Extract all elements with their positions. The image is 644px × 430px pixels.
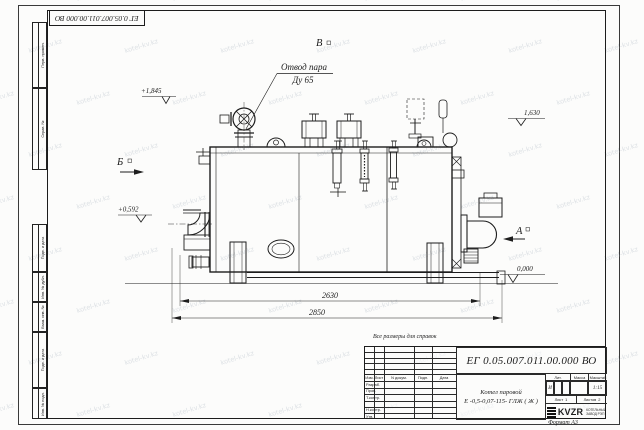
margin-label: Взам. инв. № <box>41 305 45 329</box>
margin-box-inv-podl: Инв. № подл. <box>32 388 47 419</box>
margin-label: Подп. и дата <box>41 349 45 371</box>
product-name-line2: Е -0,5-0,07-115- ГЛЖ ( Ж ) <box>464 398 538 405</box>
elevation-1845: +1,845 <box>141 87 176 104</box>
elevation-text: 1,630 <box>524 109 540 117</box>
margin-box-inv-dubl: Инв. № дубл. <box>32 272 47 302</box>
sheet-value: 1 <box>565 397 567 402</box>
top-hatch-box-1 <box>302 114 326 147</box>
grid-line <box>365 352 456 353</box>
elevation-0000: 0,000 <box>500 265 545 283</box>
steam-outlet-valve <box>220 102 255 150</box>
rear-top-fittings <box>407 99 457 147</box>
view-label-v: В <box>316 38 331 49</box>
water-level-columns <box>330 141 398 197</box>
mass-label: Масса <box>570 374 588 381</box>
product-name: Котел паровой Е -0,5-0,07-115- ГЛЖ ( Ж ) <box>456 374 546 420</box>
blowdown-pipe <box>247 271 505 284</box>
elevation-text: +0,592 <box>118 206 139 214</box>
elevation-text: 0,000 <box>517 265 533 273</box>
svg-text:Б: Б <box>116 157 123 168</box>
sheets-cell: Листов 2 <box>576 395 607 403</box>
drain-stub <box>192 257 209 267</box>
scale-value: 1:15 <box>588 381 607 395</box>
margin-label: Инв. № подл. <box>41 392 45 416</box>
callout-line2: Ду 65 <box>292 75 314 85</box>
company-cell: KVZR КОТЕЛЬНЫЙ ЗАВОД РЭП <box>546 403 607 420</box>
lit-value: И <box>546 381 554 395</box>
svg-text:А: А <box>515 226 523 237</box>
col-ndokum: N докум. <box>384 374 414 381</box>
svg-text:В: В <box>316 38 323 49</box>
row-utv: Утв. <box>365 413 384 419</box>
grid-line <box>365 369 456 370</box>
doc-number: ЕГ 0.05.007.011.00.000 ВО <box>456 347 607 374</box>
margin-box-podp-data-1: Подп. и дата <box>32 224 47 272</box>
doc-number-stamp: ЕГ 0.05.007.011.00.000 ВО <box>49 10 145 26</box>
lit-cell-2 <box>554 381 562 395</box>
col-data: Дата <box>432 374 456 381</box>
kvzr-logo-text: KVZR <box>558 407 583 417</box>
product-name-line1: Котел паровой <box>480 389 521 396</box>
margin-label: Перв. примен. <box>41 42 45 67</box>
lifting-lug-rear <box>417 140 431 147</box>
lit-cell-3 <box>562 381 570 395</box>
drawing-sheet: kotel-kv.kzkotel-kv.kzkotel-kv.kzkotel-k… <box>0 0 644 430</box>
grid-line <box>365 401 456 402</box>
doc-number-stamp-text: ЕГ 0.05.007.011.00.000 ВО <box>55 14 139 23</box>
steam-outlet-callout: Отвод пара Ду 65 <box>246 62 333 129</box>
view-label-a: А <box>503 226 530 242</box>
margin-label: Подп. и дата <box>41 237 45 259</box>
margin-box-sprav-no: Справ. № <box>32 88 47 170</box>
mass-value <box>570 381 588 395</box>
company-name: КОТЕЛЬНЫЙ ЗАВОД РЭП <box>586 408 606 416</box>
margin-label: Инв. № дубл. <box>41 275 45 299</box>
row-tkontr: Т.контр. <box>365 394 384 401</box>
format-label: Формат А3 <box>520 420 606 426</box>
callout-line1: Отвод пара <box>281 62 327 72</box>
elevation-1630: 1,630 <box>508 109 545 126</box>
sheet-cell: Лист 1 <box>546 395 576 403</box>
margin-box-vzam-inv: Взам. инв. № <box>32 302 47 332</box>
dimension-2630: 2630 <box>180 255 480 306</box>
col-list: Лист <box>374 374 384 381</box>
sheets-label: Листов <box>584 397 597 402</box>
sheets-value: 2 <box>598 397 600 402</box>
front-fittings <box>168 148 214 269</box>
margin-box-perv-primen: Перв. примен. <box>32 22 47 88</box>
sheet-label: Лист <box>555 397 563 402</box>
dim-2850-text: 2850 <box>309 308 325 317</box>
supports <box>230 242 443 283</box>
kvzr-bars-icon <box>547 407 556 418</box>
lifting-lug-front <box>267 138 285 147</box>
reference-note: Все размеры для справок <box>373 334 437 340</box>
elevation-text: +1,845 <box>141 87 162 95</box>
col-izm: Изм. <box>365 374 374 381</box>
scale-label: Масштаб <box>588 374 607 381</box>
top-hatch-box-2 <box>337 114 361 147</box>
col-podp: Подп. <box>414 374 432 381</box>
dim-2630-text: 2630 <box>322 291 338 300</box>
view-label-b: Б <box>116 157 144 175</box>
burner <box>452 170 502 263</box>
title-block: Изм. Лист N докум. Подп. Дата Разраб. Пр… <box>364 346 606 419</box>
company-logo: KVZR <box>547 407 583 418</box>
lit-label: Лит. <box>546 374 570 381</box>
elevation-0592: +0,592 <box>118 206 152 223</box>
grid-line <box>365 363 456 364</box>
margin-box-podp-data-2: Подп. и дата <box>32 332 47 388</box>
grid-line <box>365 358 456 359</box>
gauge-siphon-loop <box>443 133 457 147</box>
margin-label: Справ. № <box>41 120 45 137</box>
boiler-body <box>210 147 461 272</box>
